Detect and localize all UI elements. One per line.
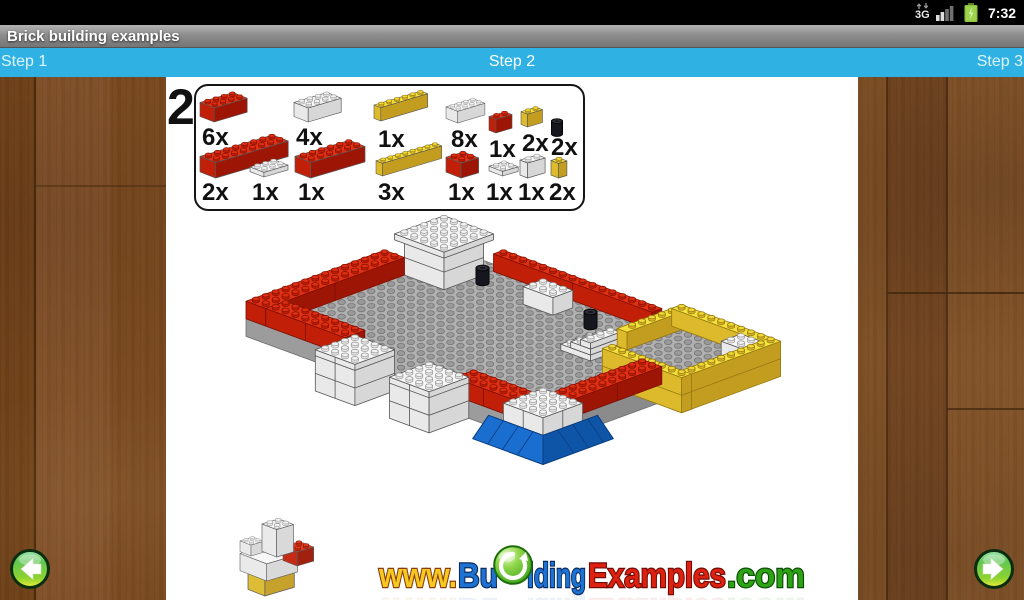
- svg-text:Bu: Bu: [458, 591, 498, 600]
- svg-text:1x: 1x: [252, 179, 279, 206]
- svg-text:1x: 1x: [298, 179, 325, 206]
- svg-text:www.: www.: [378, 557, 457, 595]
- svg-text:1x: 1x: [518, 179, 545, 206]
- svg-text:3x: 3x: [378, 179, 405, 206]
- svg-text:lding: lding: [527, 591, 586, 600]
- svg-text:lding: lding: [527, 557, 586, 595]
- svg-text:www.: www.: [378, 591, 457, 600]
- svg-text:2x: 2x: [549, 179, 576, 206]
- svg-text:8x: 8x: [451, 126, 478, 153]
- svg-text:2x: 2x: [522, 130, 549, 157]
- svg-text:1x: 1x: [448, 179, 475, 206]
- svg-text:Examples: Examples: [588, 557, 726, 595]
- svg-text:Examples: Examples: [588, 591, 726, 600]
- svg-text:2x: 2x: [202, 179, 229, 206]
- svg-text:Bu: Bu: [458, 557, 498, 595]
- svg-text:1x: 1x: [486, 179, 513, 206]
- svg-text:4x: 4x: [296, 124, 323, 151]
- svg-text:1x: 1x: [378, 126, 405, 153]
- svg-text:.com: .com: [727, 557, 805, 595]
- svg-text:6x: 6x: [202, 124, 229, 151]
- svg-text:.com: .com: [727, 591, 805, 600]
- svg-text:2x: 2x: [551, 134, 578, 161]
- svg-text:1x: 1x: [489, 136, 516, 163]
